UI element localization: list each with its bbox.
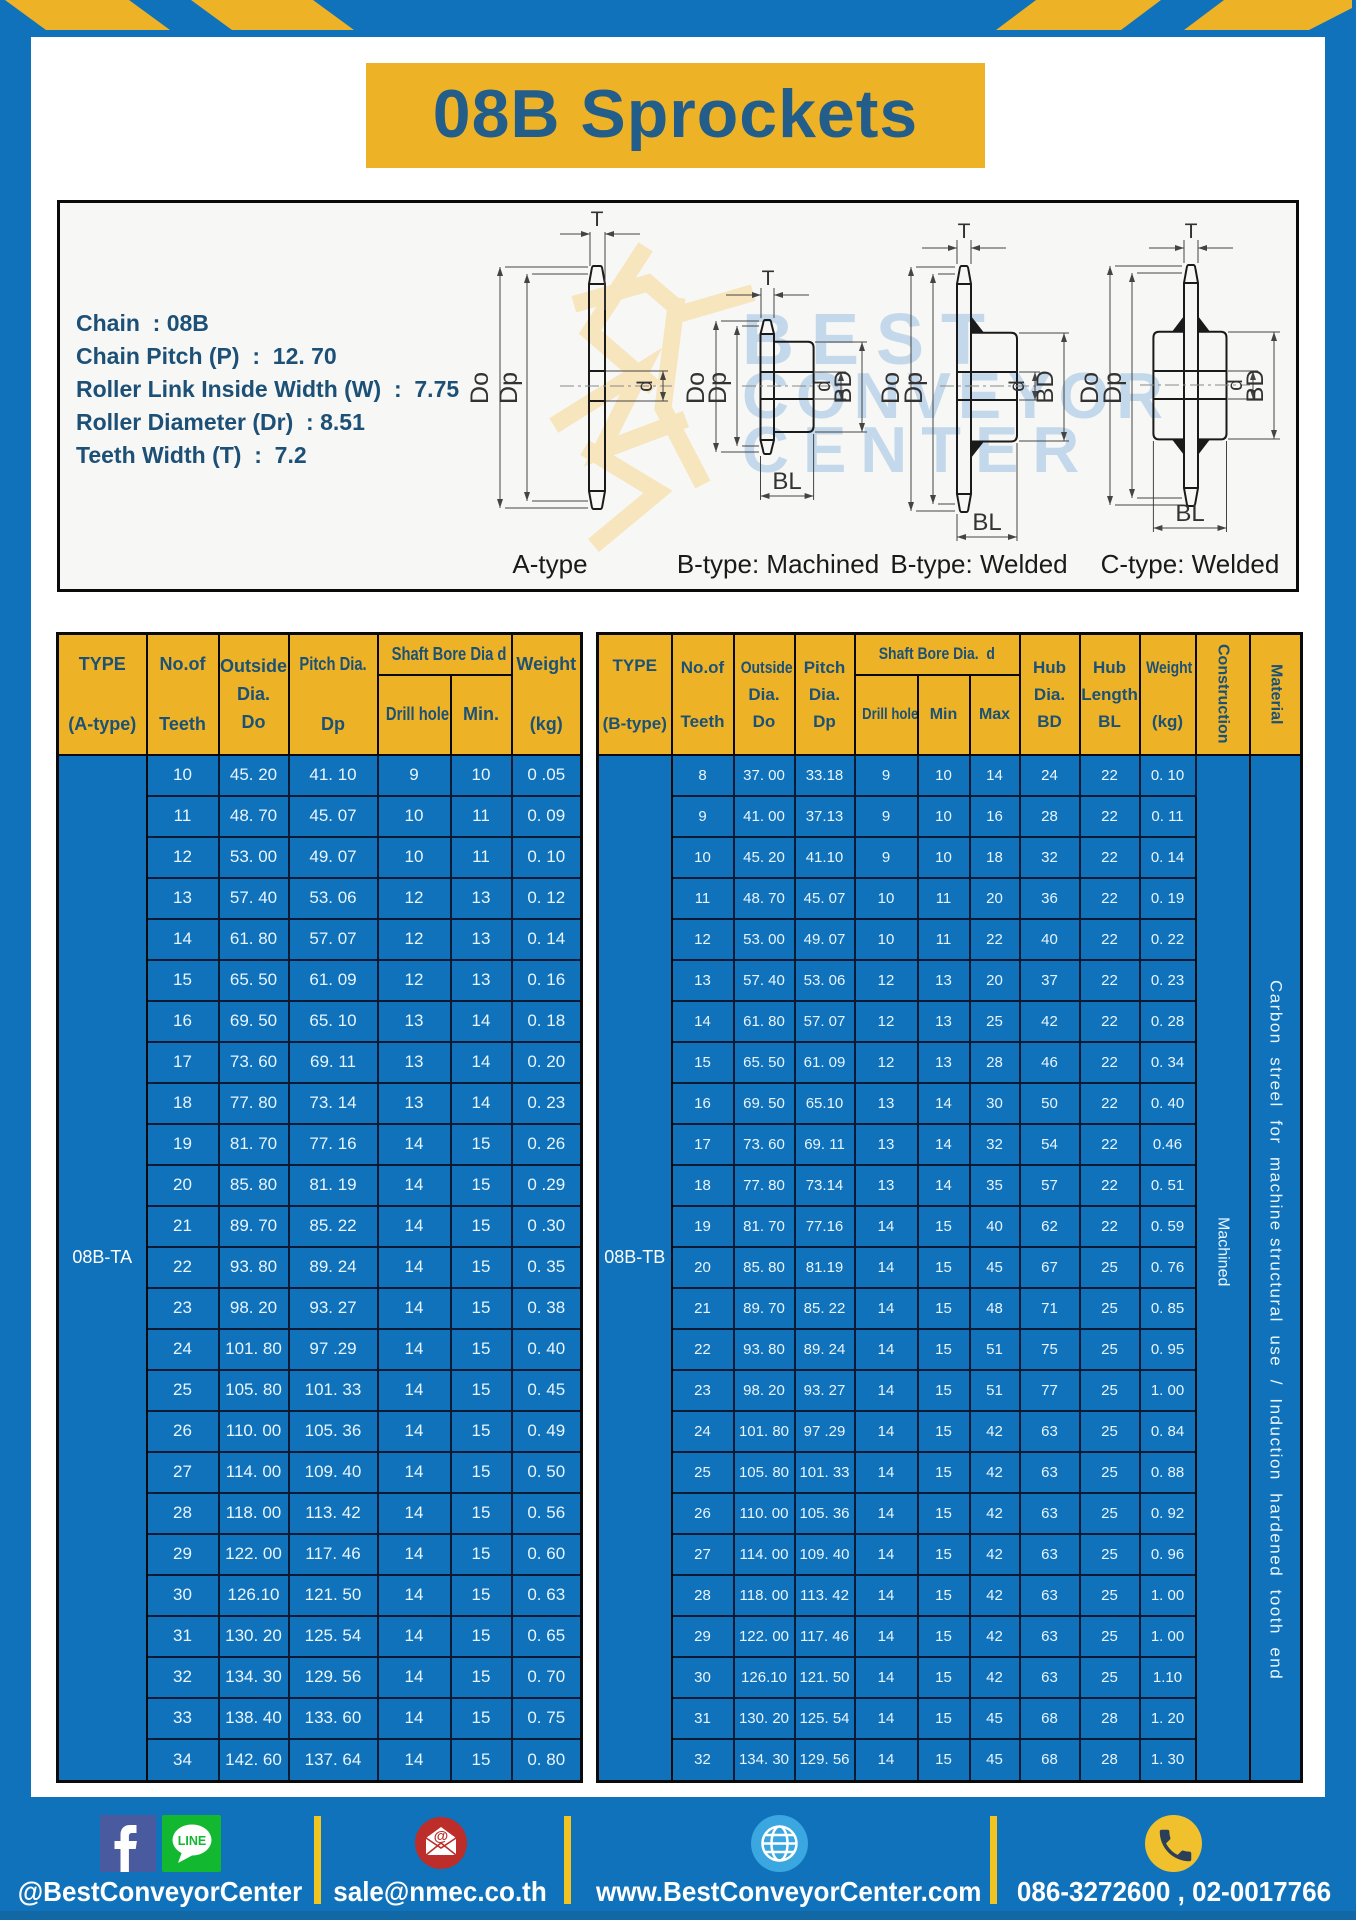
- svg-text:Dp: Dp: [900, 372, 928, 404]
- svg-text:C-type: Welded: C-type: Welded: [1101, 549, 1280, 579]
- svg-text:Dp: Dp: [1099, 372, 1127, 404]
- svg-text:BL: BL: [1175, 500, 1204, 527]
- svg-text:T: T: [591, 208, 604, 231]
- svg-text:BD: BD: [830, 370, 857, 403]
- svg-text:T: T: [762, 267, 775, 290]
- svg-text:BD: BD: [1032, 370, 1059, 403]
- svg-text:T: T: [1185, 220, 1198, 243]
- svg-text:B-type: Machined: B-type: Machined: [677, 549, 879, 579]
- svg-text:BD: BD: [1242, 369, 1269, 402]
- svg-text:B-type: Welded: B-type: Welded: [890, 549, 1067, 579]
- svg-text:d: d: [1006, 380, 1029, 392]
- svg-text:A-type: A-type: [512, 549, 587, 579]
- svg-text:T: T: [958, 220, 971, 243]
- svg-text:d: d: [634, 380, 657, 392]
- svg-text:BL: BL: [972, 509, 1001, 536]
- svg-text:Dp: Dp: [704, 372, 732, 404]
- svg-text:LINE: LINE: [178, 1834, 206, 1848]
- svg-text:BL: BL: [772, 468, 801, 495]
